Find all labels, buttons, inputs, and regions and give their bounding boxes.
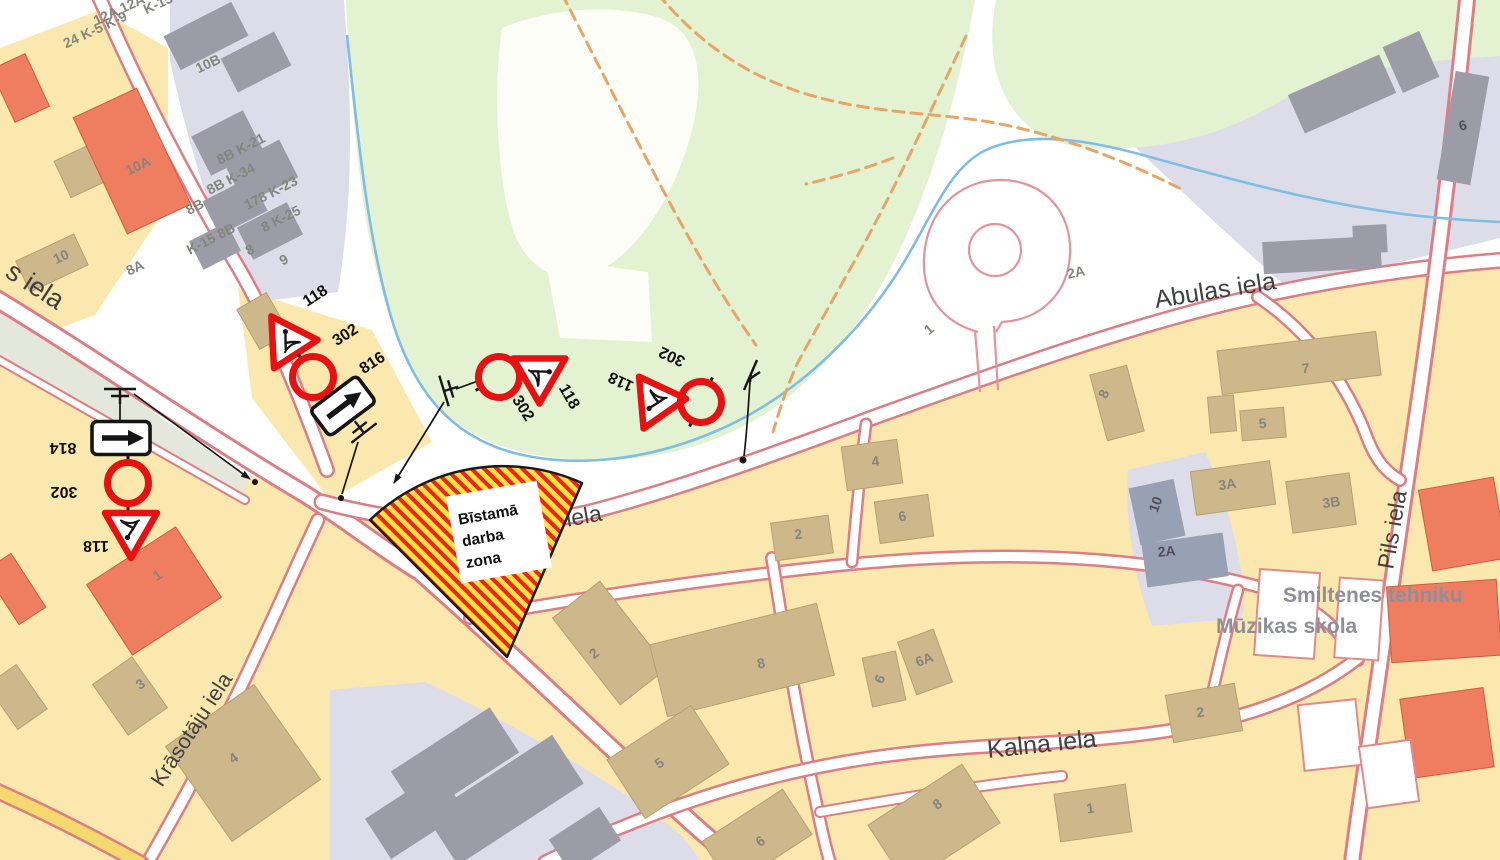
sign-code-label: 302 (51, 483, 78, 500)
building (1207, 395, 1236, 433)
danger-zone-label: Bīstamā darba zona (446, 481, 552, 584)
map-canvas: s iela Krāsotāju iela Abulas iela Abulas… (0, 0, 1500, 860)
park-clearing (545, 258, 652, 342)
building-label: 3A (1217, 475, 1237, 493)
building-label: 5 (1258, 415, 1267, 432)
building-outline (1254, 569, 1320, 659)
building-label: 7 (1301, 360, 1310, 377)
place-label-tehnikums: Smiltenes tehniku (1283, 584, 1463, 607)
building (1286, 473, 1357, 533)
leader-dot (252, 479, 258, 485)
place-label-muzikas-skola: Mūzikas skola (1216, 615, 1358, 638)
building-label: 2A (1157, 542, 1176, 559)
building-outline (1298, 699, 1363, 771)
building (1352, 224, 1387, 254)
sign-code-label: 814 (50, 439, 77, 456)
sign-code-label: 118 (83, 537, 109, 554)
building (1418, 477, 1500, 571)
building-outline (1359, 740, 1419, 809)
leader-dot (338, 495, 344, 501)
leader-dot (740, 457, 747, 464)
sign-814-arrow-icon (92, 422, 150, 455)
building-label: 3B (1321, 493, 1341, 511)
